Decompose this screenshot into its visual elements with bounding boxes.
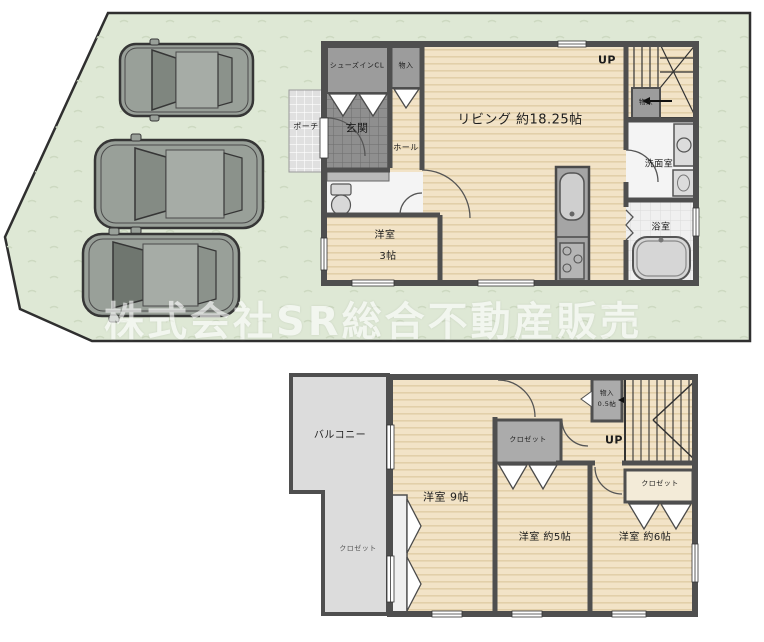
floor2-plan: [291, 375, 698, 617]
label-hall: ホール: [393, 144, 419, 152]
label-bedroom9: 洋室 9帖: [423, 492, 469, 503]
label-balcony: バルコニー: [314, 431, 366, 441]
label-storage-2f: 物入: [600, 390, 614, 397]
label-up-1f: UP: [598, 55, 616, 66]
label-living: リビング 約18.25帖: [457, 114, 582, 127]
stove-icon: [560, 243, 584, 279]
company-watermark: 株式会社SR総合不動産販売: [104, 289, 664, 335]
label-entry-storage: 物入: [399, 63, 414, 70]
label-storage-2f-size: 0.5帖: [598, 401, 617, 408]
label-closet-center: クロゼット: [509, 437, 547, 444]
kitchen-counter: [556, 167, 589, 282]
shoes-closet-area: [327, 47, 388, 93]
label-porch: ポーチ: [293, 123, 319, 131]
label-entrance: 玄関: [346, 123, 369, 134]
label-closet-right: クロゼット: [641, 481, 679, 488]
car-top: [120, 39, 253, 121]
label-bathroom: 浴室: [651, 224, 670, 233]
label-bedroom3-size: 3帖: [379, 252, 396, 262]
bathtub-icon: [633, 237, 690, 280]
vanity-icon: [673, 170, 694, 196]
stairs-2f: [625, 379, 695, 462]
balcony-area: [291, 375, 388, 614]
label-stair-storage: 物入: [639, 99, 653, 106]
label-washroom: 洗面室: [645, 161, 674, 170]
washer-icon: [674, 124, 694, 166]
toilet-icon: [331, 184, 351, 215]
floor-plan-image: ポーチ シューズインCL 物入 玄関 ホール リビング 約18.25帖 UP 物…: [0, 0, 764, 642]
label-shoes-closet: シューズインCL: [330, 63, 384, 70]
floor1-plan: [289, 41, 699, 286]
label-bedroom5: 洋室 約5帖: [519, 533, 572, 543]
label-bedroom3-name: 洋室: [375, 231, 396, 241]
label-bedroom6: 洋室 約6帖: [619, 533, 672, 543]
car-middle: [95, 134, 263, 234]
label-up-2f: UP: [605, 435, 623, 446]
label-closet-left: クロゼット: [339, 546, 377, 553]
